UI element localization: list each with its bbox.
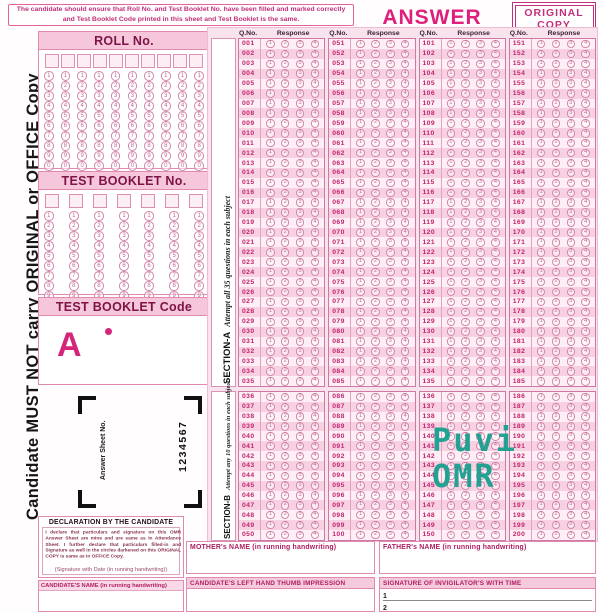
q032-option-1-bubble[interactable]: 1 xyxy=(266,347,275,356)
mother-name-box[interactable]: MOTHER's NAME (in running handwriting) xyxy=(186,541,375,574)
q122-option-4-bubble[interactable]: 4 xyxy=(491,248,500,257)
q093-option-3-bubble[interactable]: 3 xyxy=(386,462,395,471)
q020-option-4-bubble[interactable]: 4 xyxy=(311,228,320,237)
q116-option-2-bubble[interactable]: 2 xyxy=(461,189,470,198)
q184-option-1-bubble[interactable]: 1 xyxy=(537,367,546,376)
q061-option-2-bubble[interactable]: 2 xyxy=(371,139,380,148)
q149-option-3-bubble[interactable]: 3 xyxy=(476,521,485,530)
q021-option-4-bubble[interactable]: 4 xyxy=(311,238,320,247)
q003-option-4-bubble[interactable]: 4 xyxy=(311,60,320,69)
booklet-bubble-col3-digit-8[interactable]: 8 xyxy=(94,281,104,291)
q019-option-1-bubble[interactable]: 1 xyxy=(266,218,275,227)
q163-option-1-bubble[interactable]: 1 xyxy=(537,159,546,168)
q106-option-3-bubble[interactable]: 3 xyxy=(476,89,485,98)
q196-option-3-bubble[interactable]: 3 xyxy=(567,491,576,500)
q069-option-1-bubble[interactable]: 1 xyxy=(356,218,365,227)
q193-option-2-bubble[interactable]: 2 xyxy=(552,462,561,471)
q056-option-4-bubble[interactable]: 4 xyxy=(401,89,410,98)
q096-option-4-bubble[interactable]: 4 xyxy=(401,491,410,500)
q184-option-3-bubble[interactable]: 3 xyxy=(567,367,576,376)
q098-option-3-bubble[interactable]: 3 xyxy=(386,511,395,520)
q058-option-1-bubble[interactable]: 1 xyxy=(356,109,365,118)
q040-option-3-bubble[interactable]: 3 xyxy=(296,432,305,441)
q049-option-1-bubble[interactable]: 1 xyxy=(266,521,275,530)
q107-option-3-bubble[interactable]: 3 xyxy=(476,99,485,108)
q014-option-4-bubble[interactable]: 4 xyxy=(311,169,320,178)
q055-option-2-bubble[interactable]: 2 xyxy=(371,79,380,88)
booklet-bubble-col5-digit-7[interactable]: 7 xyxy=(144,271,154,281)
q106-option-1-bubble[interactable]: 1 xyxy=(447,89,456,98)
booklet-bubble-col7-digit-3[interactable]: 3 xyxy=(194,231,204,241)
q095-option-1-bubble[interactable]: 1 xyxy=(356,481,365,490)
q148-option-1-bubble[interactable]: 1 xyxy=(447,511,456,520)
q020-option-1-bubble[interactable]: 1 xyxy=(266,228,275,237)
q113-option-4-bubble[interactable]: 4 xyxy=(491,159,500,168)
q160-option-4-bubble[interactable]: 4 xyxy=(581,129,590,138)
roll-bubble-col2-digit-2[interactable]: 2 xyxy=(61,81,71,91)
q049-option-3-bubble[interactable]: 3 xyxy=(296,521,305,530)
q176-option-1-bubble[interactable]: 1 xyxy=(537,288,546,297)
roll-bubble-col3-digit-8[interactable]: 8 xyxy=(77,141,87,151)
q151-option-2-bubble[interactable]: 2 xyxy=(552,40,561,49)
booklet-entry-box-3[interactable] xyxy=(93,194,107,208)
roll-entry-box-4[interactable] xyxy=(93,54,107,68)
q170-option-2-bubble[interactable]: 2 xyxy=(552,228,561,237)
q109-option-4-bubble[interactable]: 4 xyxy=(491,119,500,128)
q068-option-3-bubble[interactable]: 3 xyxy=(386,208,395,217)
q194-option-2-bubble[interactable]: 2 xyxy=(552,472,561,481)
q019-option-3-bubble[interactable]: 3 xyxy=(296,218,305,227)
q052-option-4-bubble[interactable]: 4 xyxy=(401,50,410,59)
q005-option-3-bubble[interactable]: 3 xyxy=(296,79,305,88)
q088-option-3-bubble[interactable]: 3 xyxy=(386,412,395,421)
q024-option-1-bubble[interactable]: 1 xyxy=(266,268,275,277)
q036-option-1-bubble[interactable]: 1 xyxy=(266,393,275,402)
q107-option-2-bubble[interactable]: 2 xyxy=(461,99,470,108)
q164-option-1-bubble[interactable]: 1 xyxy=(537,169,546,178)
q029-option-2-bubble[interactable]: 2 xyxy=(281,318,290,327)
q126-option-2-bubble[interactable]: 2 xyxy=(461,288,470,297)
q060-option-3-bubble[interactable]: 3 xyxy=(386,129,395,138)
q121-option-2-bubble[interactable]: 2 xyxy=(461,238,470,247)
q182-option-1-bubble[interactable]: 1 xyxy=(537,347,546,356)
q047-option-4-bubble[interactable]: 4 xyxy=(311,501,320,510)
q100-option-4-bubble[interactable]: 4 xyxy=(401,531,410,540)
q062-option-2-bubble[interactable]: 2 xyxy=(371,149,380,158)
q168-option-2-bubble[interactable]: 2 xyxy=(552,208,561,217)
q051-option-4-bubble[interactable]: 4 xyxy=(401,40,410,49)
q039-option-4-bubble[interactable]: 4 xyxy=(311,422,320,431)
q054-option-3-bubble[interactable]: 3 xyxy=(386,69,395,78)
q037-option-3-bubble[interactable]: 3 xyxy=(296,403,305,412)
q128-option-4-bubble[interactable]: 4 xyxy=(491,308,500,317)
roll-bubble-col7-digit-5[interactable]: 5 xyxy=(144,111,154,121)
q103-option-3-bubble[interactable]: 3 xyxy=(476,60,485,69)
q199-option-2-bubble[interactable]: 2 xyxy=(552,521,561,530)
q133-option-2-bubble[interactable]: 2 xyxy=(461,357,470,366)
booklet-entry-box-6[interactable] xyxy=(165,194,179,208)
q119-option-2-bubble[interactable]: 2 xyxy=(461,218,470,227)
q074-option-2-bubble[interactable]: 2 xyxy=(371,268,380,277)
q018-option-3-bubble[interactable]: 3 xyxy=(296,208,305,217)
q132-option-4-bubble[interactable]: 4 xyxy=(491,347,500,356)
roll-bubble-col2-digit-1[interactable]: 1 xyxy=(61,71,71,81)
booklet-bubble-col4-digit-5[interactable]: 5 xyxy=(119,251,129,261)
q121-option-1-bubble[interactable]: 1 xyxy=(447,238,456,247)
q076-option-2-bubble[interactable]: 2 xyxy=(371,288,380,297)
q166-option-4-bubble[interactable]: 4 xyxy=(581,189,590,198)
roll-bubble-col6-digit-4[interactable]: 4 xyxy=(128,101,138,111)
q126-option-4-bubble[interactable]: 4 xyxy=(491,288,500,297)
q171-option-3-bubble[interactable]: 3 xyxy=(567,238,576,247)
q025-option-4-bubble[interactable]: 4 xyxy=(311,278,320,287)
q012-option-1-bubble[interactable]: 1 xyxy=(266,149,275,158)
q169-option-3-bubble[interactable]: 3 xyxy=(567,218,576,227)
roll-entry-box-2[interactable] xyxy=(61,54,75,68)
q084-option-3-bubble[interactable]: 3 xyxy=(386,367,395,376)
q071-option-4-bubble[interactable]: 4 xyxy=(401,238,410,247)
booklet-bubble-col3-digit-3[interactable]: 3 xyxy=(94,231,104,241)
q192-option-2-bubble[interactable]: 2 xyxy=(552,452,561,461)
q017-option-3-bubble[interactable]: 3 xyxy=(296,198,305,207)
q128-option-3-bubble[interactable]: 3 xyxy=(476,308,485,317)
q039-option-1-bubble[interactable]: 1 xyxy=(266,422,275,431)
q051-option-2-bubble[interactable]: 2 xyxy=(371,40,380,49)
q049-option-2-bubble[interactable]: 2 xyxy=(281,521,290,530)
q188-option-3-bubble[interactable]: 3 xyxy=(567,412,576,421)
q117-option-4-bubble[interactable]: 4 xyxy=(491,198,500,207)
q109-option-1-bubble[interactable]: 1 xyxy=(447,119,456,128)
q178-option-3-bubble[interactable]: 3 xyxy=(567,308,576,317)
q180-option-1-bubble[interactable]: 1 xyxy=(537,327,546,336)
q038-option-3-bubble[interactable]: 3 xyxy=(296,412,305,421)
q033-option-3-bubble[interactable]: 3 xyxy=(296,357,305,366)
q121-option-3-bubble[interactable]: 3 xyxy=(476,238,485,247)
q077-option-3-bubble[interactable]: 3 xyxy=(386,298,395,307)
q027-option-3-bubble[interactable]: 3 xyxy=(296,298,305,307)
roll-bubble-col10-digit-9[interactable]: 9 xyxy=(194,151,204,161)
q159-option-3-bubble[interactable]: 3 xyxy=(567,119,576,128)
q011-option-3-bubble[interactable]: 3 xyxy=(296,139,305,148)
q166-option-3-bubble[interactable]: 3 xyxy=(567,189,576,198)
roll-bubble-col4-digit-6[interactable]: 6 xyxy=(94,121,104,131)
roll-bubble-col9-digit-6[interactable]: 6 xyxy=(178,121,188,131)
q147-option-2-bubble[interactable]: 2 xyxy=(461,501,470,510)
q137-option-4-bubble[interactable]: 4 xyxy=(491,403,500,412)
q122-option-1-bubble[interactable]: 1 xyxy=(447,248,456,257)
q197-option-2-bubble[interactable]: 2 xyxy=(552,501,561,510)
q031-option-1-bubble[interactable]: 1 xyxy=(266,337,275,346)
q022-option-3-bubble[interactable]: 3 xyxy=(296,248,305,257)
q195-option-2-bubble[interactable]: 2 xyxy=(552,481,561,490)
q087-option-1-bubble[interactable]: 1 xyxy=(356,403,365,412)
q198-option-4-bubble[interactable]: 4 xyxy=(581,511,590,520)
q002-option-3-bubble[interactable]: 3 xyxy=(296,50,305,59)
q035-option-3-bubble[interactable]: 3 xyxy=(296,377,305,386)
q033-option-1-bubble[interactable]: 1 xyxy=(266,357,275,366)
booklet-bubble-col6-digit-4[interactable]: 4 xyxy=(169,241,179,251)
q172-option-1-bubble[interactable]: 1 xyxy=(537,248,546,257)
roll-bubble-col8-digit-0[interactable]: 0 xyxy=(161,161,171,171)
q187-option-2-bubble[interactable]: 2 xyxy=(552,403,561,412)
q193-option-3-bubble[interactable]: 3 xyxy=(567,462,576,471)
q058-option-3-bubble[interactable]: 3 xyxy=(386,109,395,118)
booklet-bubble-col7-digit-1[interactable]: 1 xyxy=(194,211,204,221)
q121-option-4-bubble[interactable]: 4 xyxy=(491,238,500,247)
q116-option-3-bubble[interactable]: 3 xyxy=(476,189,485,198)
q051-option-1-bubble[interactable]: 1 xyxy=(356,40,365,49)
q114-option-2-bubble[interactable]: 2 xyxy=(461,169,470,178)
booklet-bubble-col5-digit-2[interactable]: 2 xyxy=(144,221,154,231)
q002-option-1-bubble[interactable]: 1 xyxy=(266,50,275,59)
q090-option-1-bubble[interactable]: 1 xyxy=(356,432,365,441)
q166-option-1-bubble[interactable]: 1 xyxy=(537,189,546,198)
q064-option-3-bubble[interactable]: 3 xyxy=(386,169,395,178)
q055-option-4-bubble[interactable]: 4 xyxy=(401,79,410,88)
q074-option-3-bubble[interactable]: 3 xyxy=(386,268,395,277)
q128-option-1-bubble[interactable]: 1 xyxy=(447,308,456,317)
q014-option-3-bubble[interactable]: 3 xyxy=(296,169,305,178)
roll-bubble-col1-digit-2[interactable]: 2 xyxy=(44,81,54,91)
q057-option-3-bubble[interactable]: 3 xyxy=(386,99,395,108)
q054-option-2-bubble[interactable]: 2 xyxy=(371,69,380,78)
q007-option-1-bubble[interactable]: 1 xyxy=(266,99,275,108)
q186-option-3-bubble[interactable]: 3 xyxy=(567,393,576,402)
q058-option-4-bubble[interactable]: 4 xyxy=(401,109,410,118)
roll-bubble-col5-digit-1[interactable]: 1 xyxy=(111,71,121,81)
q148-option-4-bubble[interactable]: 4 xyxy=(491,511,500,520)
q155-option-3-bubble[interactable]: 3 xyxy=(567,79,576,88)
q115-option-4-bubble[interactable]: 4 xyxy=(491,179,500,188)
roll-bubble-col4-digit-9[interactable]: 9 xyxy=(94,151,104,161)
q083-option-1-bubble[interactable]: 1 xyxy=(356,357,365,366)
q105-option-2-bubble[interactable]: 2 xyxy=(461,79,470,88)
roll-bubble-col8-digit-3[interactable]: 3 xyxy=(161,91,171,101)
roll-bubble-col5-digit-3[interactable]: 3 xyxy=(111,91,121,101)
q065-option-1-bubble[interactable]: 1 xyxy=(356,179,365,188)
q191-option-2-bubble[interactable]: 2 xyxy=(552,442,561,451)
booklet-bubble-col2-digit-2[interactable]: 2 xyxy=(69,221,79,231)
q053-option-1-bubble[interactable]: 1 xyxy=(356,60,365,69)
q093-option-1-bubble[interactable]: 1 xyxy=(356,462,365,471)
q111-option-1-bubble[interactable]: 1 xyxy=(447,139,456,148)
q047-option-3-bubble[interactable]: 3 xyxy=(296,501,305,510)
q124-option-4-bubble[interactable]: 4 xyxy=(491,268,500,277)
q064-option-2-bubble[interactable]: 2 xyxy=(371,169,380,178)
booklet-entry-box-5[interactable] xyxy=(141,194,155,208)
q003-option-1-bubble[interactable]: 1 xyxy=(266,60,275,69)
q122-option-2-bubble[interactable]: 2 xyxy=(461,248,470,257)
q196-option-4-bubble[interactable]: 4 xyxy=(581,491,590,500)
booklet-bubble-col2-digit-8[interactable]: 8 xyxy=(69,281,79,291)
roll-bubble-col5-digit-7[interactable]: 7 xyxy=(111,131,121,141)
q083-option-2-bubble[interactable]: 2 xyxy=(371,357,380,366)
booklet-entry-box-2[interactable] xyxy=(69,194,83,208)
q180-option-3-bubble[interactable]: 3 xyxy=(567,327,576,336)
q117-option-2-bubble[interactable]: 2 xyxy=(461,198,470,207)
q057-option-1-bubble[interactable]: 1 xyxy=(356,99,365,108)
q117-option-3-bubble[interactable]: 3 xyxy=(476,198,485,207)
q131-option-1-bubble[interactable]: 1 xyxy=(447,337,456,346)
booklet-bubble-col1-digit-2[interactable]: 2 xyxy=(44,221,54,231)
q127-option-1-bubble[interactable]: 1 xyxy=(447,298,456,307)
q060-option-4-bubble[interactable]: 4 xyxy=(401,129,410,138)
q055-option-1-bubble[interactable]: 1 xyxy=(356,79,365,88)
q086-option-4-bubble[interactable]: 4 xyxy=(401,393,410,402)
q125-option-1-bubble[interactable]: 1 xyxy=(447,278,456,287)
q185-option-2-bubble[interactable]: 2 xyxy=(552,377,561,386)
q091-option-4-bubble[interactable]: 4 xyxy=(401,442,410,451)
q021-option-1-bubble[interactable]: 1 xyxy=(266,238,275,247)
q137-option-2-bubble[interactable]: 2 xyxy=(461,403,470,412)
roll-bubble-col8-digit-9[interactable]: 9 xyxy=(161,151,171,161)
q010-option-1-bubble[interactable]: 1 xyxy=(266,129,275,138)
q014-option-2-bubble[interactable]: 2 xyxy=(281,169,290,178)
q076-option-1-bubble[interactable]: 1 xyxy=(356,288,365,297)
q120-option-2-bubble[interactable]: 2 xyxy=(461,228,470,237)
q053-option-4-bubble[interactable]: 4 xyxy=(401,60,410,69)
q165-option-4-bubble[interactable]: 4 xyxy=(581,179,590,188)
roll-entry-box-3[interactable] xyxy=(77,54,91,68)
q047-option-1-bubble[interactable]: 1 xyxy=(266,501,275,510)
q021-option-3-bubble[interactable]: 3 xyxy=(296,238,305,247)
booklet-bubble-col3-digit-2[interactable]: 2 xyxy=(94,221,104,231)
roll-bubble-col8-digit-7[interactable]: 7 xyxy=(161,131,171,141)
q169-option-1-bubble[interactable]: 1 xyxy=(537,218,546,227)
q071-option-3-bubble[interactable]: 3 xyxy=(386,238,395,247)
q163-option-3-bubble[interactable]: 3 xyxy=(567,159,576,168)
q174-option-4-bubble[interactable]: 4 xyxy=(581,268,590,277)
q181-option-4-bubble[interactable]: 4 xyxy=(581,337,590,346)
q015-option-4-bubble[interactable]: 4 xyxy=(311,179,320,188)
q100-option-1-bubble[interactable]: 1 xyxy=(356,531,365,540)
q079-option-3-bubble[interactable]: 3 xyxy=(386,318,395,327)
q079-option-1-bubble[interactable]: 1 xyxy=(356,318,365,327)
roll-bubble-col1-digit-6[interactable]: 6 xyxy=(44,121,54,131)
q099-option-2-bubble[interactable]: 2 xyxy=(371,521,380,530)
q067-option-1-bubble[interactable]: 1 xyxy=(356,198,365,207)
q162-option-1-bubble[interactable]: 1 xyxy=(537,149,546,158)
q177-option-1-bubble[interactable]: 1 xyxy=(537,298,546,307)
booklet-entry-box-7[interactable] xyxy=(189,194,203,208)
q180-option-2-bubble[interactable]: 2 xyxy=(552,327,561,336)
q017-option-1-bubble[interactable]: 1 xyxy=(266,198,275,207)
q123-option-3-bubble[interactable]: 3 xyxy=(476,258,485,267)
q010-option-4-bubble[interactable]: 4 xyxy=(311,129,320,138)
q104-option-2-bubble[interactable]: 2 xyxy=(461,69,470,78)
q173-option-3-bubble[interactable]: 3 xyxy=(567,258,576,267)
roll-bubble-col1-digit-5[interactable]: 5 xyxy=(44,111,54,121)
q048-option-4-bubble[interactable]: 4 xyxy=(311,511,320,520)
q063-option-1-bubble[interactable]: 1 xyxy=(356,159,365,168)
roll-bubble-col1-digit-7[interactable]: 7 xyxy=(44,131,54,141)
q173-option-2-bubble[interactable]: 2 xyxy=(552,258,561,267)
q050-option-3-bubble[interactable]: 3 xyxy=(296,531,305,540)
q135-option-1-bubble[interactable]: 1 xyxy=(447,377,456,386)
q131-option-4-bubble[interactable]: 4 xyxy=(491,337,500,346)
q200-option-4-bubble[interactable]: 4 xyxy=(581,531,590,540)
q077-option-2-bubble[interactable]: 2 xyxy=(371,298,380,307)
q043-option-1-bubble[interactable]: 1 xyxy=(266,462,275,471)
q002-option-4-bubble[interactable]: 4 xyxy=(311,50,320,59)
q007-option-4-bubble[interactable]: 4 xyxy=(311,99,320,108)
q001-option-3-bubble[interactable]: 3 xyxy=(296,40,305,49)
roll-bubble-col10-digit-5[interactable]: 5 xyxy=(194,111,204,121)
roll-bubble-col7-digit-3[interactable]: 3 xyxy=(144,91,154,101)
q097-option-3-bubble[interactable]: 3 xyxy=(386,501,395,510)
q184-option-2-bubble[interactable]: 2 xyxy=(552,367,561,376)
q130-option-4-bubble[interactable]: 4 xyxy=(491,327,500,336)
q197-option-1-bubble[interactable]: 1 xyxy=(537,501,546,510)
q069-option-2-bubble[interactable]: 2 xyxy=(371,218,380,227)
q168-option-4-bubble[interactable]: 4 xyxy=(581,208,590,217)
q028-option-3-bubble[interactable]: 3 xyxy=(296,308,305,317)
q027-option-4-bubble[interactable]: 4 xyxy=(311,298,320,307)
roll-bubble-col2-digit-9[interactable]: 9 xyxy=(61,151,71,161)
q052-option-2-bubble[interactable]: 2 xyxy=(371,50,380,59)
booklet-entry-box-4[interactable] xyxy=(117,194,131,208)
booklet-bubble-col1-digit-7[interactable]: 7 xyxy=(44,271,54,281)
q016-option-1-bubble[interactable]: 1 xyxy=(266,189,275,198)
booklet-bubble-col2-digit-4[interactable]: 4 xyxy=(69,241,79,251)
q095-option-3-bubble[interactable]: 3 xyxy=(386,481,395,490)
q094-option-1-bubble[interactable]: 1 xyxy=(356,472,365,481)
q045-option-1-bubble[interactable]: 1 xyxy=(266,481,275,490)
q124-option-3-bubble[interactable]: 3 xyxy=(476,268,485,277)
invigilator-signature-row-1[interactable]: 1 xyxy=(383,589,592,601)
q118-option-4-bubble[interactable]: 4 xyxy=(491,208,500,217)
q111-option-3-bubble[interactable]: 3 xyxy=(476,139,485,148)
roll-bubble-col8-digit-6[interactable]: 6 xyxy=(161,121,171,131)
booklet-bubble-col3-digit-6[interactable]: 6 xyxy=(94,261,104,271)
q173-option-4-bubble[interactable]: 4 xyxy=(581,258,590,267)
roll-bubble-col6-digit-3[interactable]: 3 xyxy=(128,91,138,101)
roll-bubble-col8-digit-5[interactable]: 5 xyxy=(161,111,171,121)
q134-option-2-bubble[interactable]: 2 xyxy=(461,367,470,376)
q187-option-4-bubble[interactable]: 4 xyxy=(581,403,590,412)
q080-option-2-bubble[interactable]: 2 xyxy=(371,327,380,336)
q023-option-1-bubble[interactable]: 1 xyxy=(266,258,275,267)
q138-option-3-bubble[interactable]: 3 xyxy=(476,412,485,421)
booklet-bubble-col1-digit-3[interactable]: 3 xyxy=(44,231,54,241)
roll-bubble-col9-digit-3[interactable]: 3 xyxy=(178,91,188,101)
q013-option-3-bubble[interactable]: 3 xyxy=(296,159,305,168)
q183-option-3-bubble[interactable]: 3 xyxy=(567,357,576,366)
q186-option-2-bubble[interactable]: 2 xyxy=(552,393,561,402)
q062-option-3-bubble[interactable]: 3 xyxy=(386,149,395,158)
q068-option-1-bubble[interactable]: 1 xyxy=(356,208,365,217)
q160-option-2-bubble[interactable]: 2 xyxy=(552,129,561,138)
roll-bubble-col6-digit-0[interactable]: 0 xyxy=(128,161,138,171)
q183-option-1-bubble[interactable]: 1 xyxy=(537,357,546,366)
booklet-bubble-col1-digit-4[interactable]: 4 xyxy=(44,241,54,251)
q176-option-3-bubble[interactable]: 3 xyxy=(567,288,576,297)
q160-option-1-bubble[interactable]: 1 xyxy=(537,129,546,138)
q018-option-2-bubble[interactable]: 2 xyxy=(281,208,290,217)
roll-bubble-col9-digit-5[interactable]: 5 xyxy=(178,111,188,121)
q167-option-1-bubble[interactable]: 1 xyxy=(537,198,546,207)
q068-option-4-bubble[interactable]: 4 xyxy=(401,208,410,217)
q119-option-4-bubble[interactable]: 4 xyxy=(491,218,500,227)
q149-option-2-bubble[interactable]: 2 xyxy=(461,521,470,530)
q152-option-3-bubble[interactable]: 3 xyxy=(567,50,576,59)
roll-bubble-col10-digit-3[interactable]: 3 xyxy=(194,91,204,101)
q066-option-1-bubble[interactable]: 1 xyxy=(356,189,365,198)
roll-bubble-col5-digit-0[interactable]: 0 xyxy=(111,161,121,171)
q159-option-4-bubble[interactable]: 4 xyxy=(581,119,590,128)
q127-option-2-bubble[interactable]: 2 xyxy=(461,298,470,307)
q040-option-1-bubble[interactable]: 1 xyxy=(266,432,275,441)
